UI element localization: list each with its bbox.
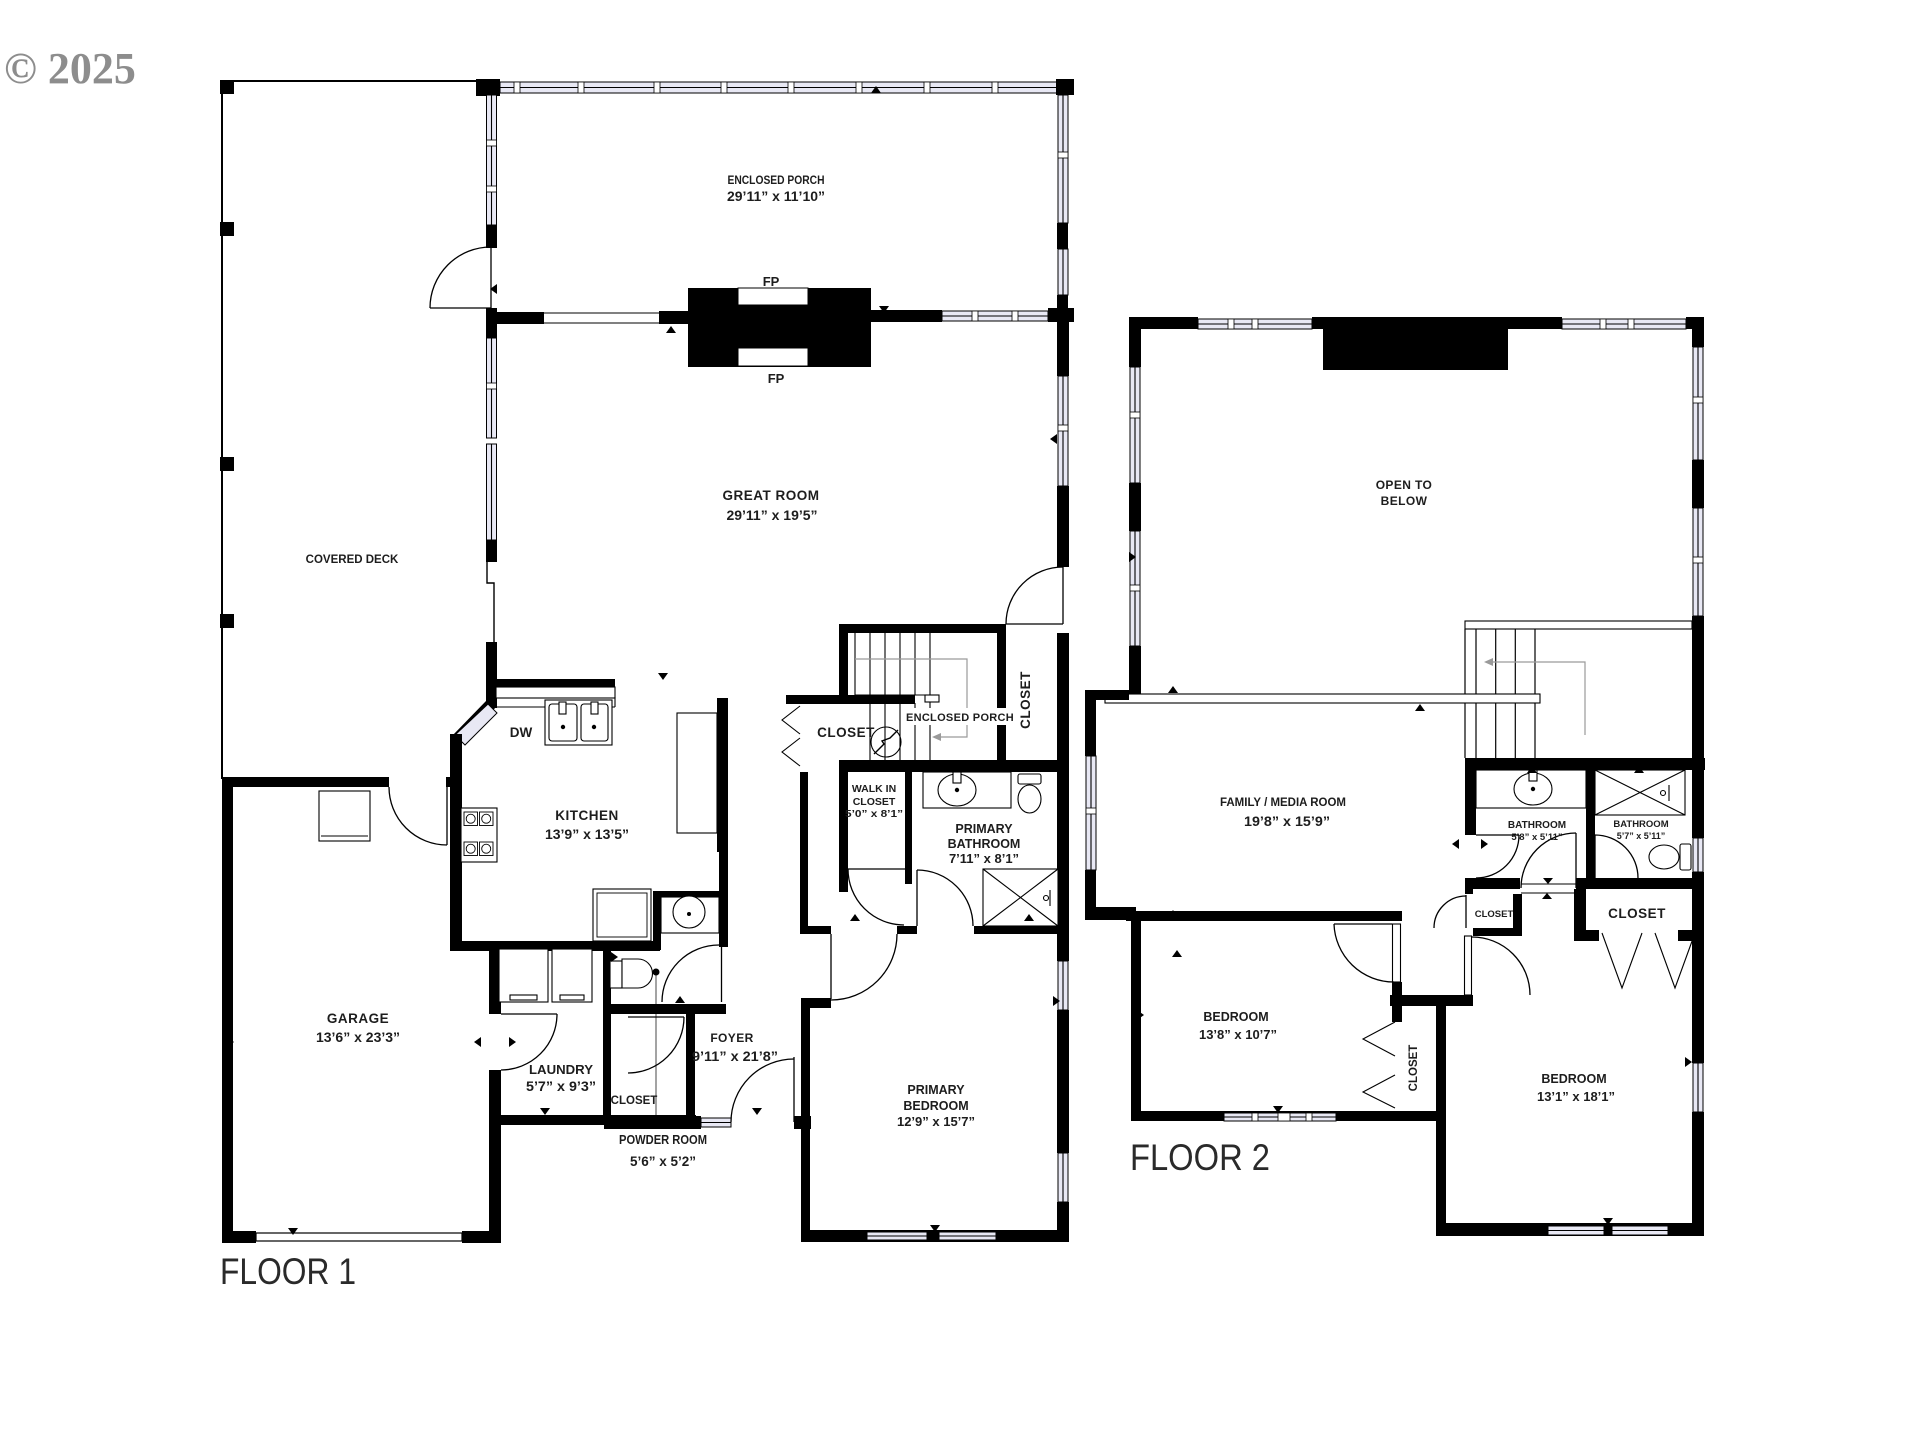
svg-text:FAMILY / MEDIA ROOM: FAMILY / MEDIA ROOM xyxy=(1220,795,1346,809)
svg-text:29’11” x 19’5”: 29’11” x 19’5” xyxy=(726,507,817,523)
svg-text:KITCHEN: KITCHEN xyxy=(555,808,619,823)
svg-text:FOYER: FOYER xyxy=(710,1031,753,1045)
svg-text:13’9” x 13’5”: 13’9” x 13’5” xyxy=(545,826,629,842)
svg-text:BELOW: BELOW xyxy=(1381,494,1428,508)
svg-text:9’11” x 21’8”: 9’11” x 21’8” xyxy=(692,1049,778,1064)
svg-text:ENCLOSED PORCH: ENCLOSED PORCH xyxy=(728,173,825,187)
svg-text:CLOSET: CLOSET xyxy=(1408,1045,1420,1092)
svg-text:CLOSET: CLOSET xyxy=(1608,906,1666,921)
svg-text:LAUNDRY: LAUNDRY xyxy=(529,1062,593,1077)
svg-text:5’8” x 5’11”: 5’8” x 5’11” xyxy=(1511,832,1562,843)
svg-text:BEDROOM: BEDROOM xyxy=(1541,1072,1606,1086)
svg-text:7’11” x 8’1”: 7’11” x 8’1” xyxy=(949,851,1019,866)
svg-text:BEDROOM: BEDROOM xyxy=(903,1099,968,1113)
svg-text:FLOOR 1: FLOOR 1 xyxy=(220,1251,356,1292)
svg-text:FP: FP xyxy=(768,371,785,386)
svg-text:5’0” x 8’1”: 5’0” x 8’1” xyxy=(845,808,903,820)
svg-text:COVERED DECK: COVERED DECK xyxy=(306,554,399,566)
svg-text:CLOSET: CLOSET xyxy=(1475,909,1514,920)
svg-text:WALK IN: WALK IN xyxy=(852,783,896,795)
svg-text:13’8” x 10’7”: 13’8” x 10’7” xyxy=(1199,1027,1277,1042)
svg-text:CLOSET: CLOSET xyxy=(611,1095,658,1107)
svg-text:GARAGE: GARAGE xyxy=(327,1011,389,1026)
svg-text:5’7” x 5’11”: 5’7” x 5’11” xyxy=(1617,831,1666,841)
svg-text:CLOSET: CLOSET xyxy=(817,725,875,740)
svg-text:© 2025: © 2025 xyxy=(4,44,136,93)
svg-text:POWDER ROOM: POWDER ROOM xyxy=(619,1132,707,1147)
svg-text:13’1” x 18’1”: 13’1” x 18’1” xyxy=(1537,1089,1615,1104)
svg-text:CLOSET: CLOSET xyxy=(1018,671,1033,729)
svg-text:FP: FP xyxy=(763,274,780,289)
svg-text:OPEN TO: OPEN TO xyxy=(1376,478,1433,492)
svg-text:13’6” x 23’3”: 13’6” x 23’3” xyxy=(316,1029,400,1045)
svg-text:5’7” x 9’3”: 5’7” x 9’3” xyxy=(526,1079,596,1094)
svg-text:DW: DW xyxy=(510,725,533,740)
svg-text:PRIMARY: PRIMARY xyxy=(907,1083,965,1097)
svg-text:19’8” x 15’9”: 19’8” x 15’9” xyxy=(1244,814,1330,829)
svg-text:29’11” x 11’10”: 29’11” x 11’10” xyxy=(727,189,825,204)
svg-text:PRIMARY: PRIMARY xyxy=(955,822,1013,836)
svg-text:BEDROOM: BEDROOM xyxy=(1203,1010,1268,1024)
svg-text:5’6” x 5’2”: 5’6” x 5’2” xyxy=(630,1154,696,1169)
svg-text:GREAT ROOM: GREAT ROOM xyxy=(723,488,820,503)
svg-text:BATHROOM: BATHROOM xyxy=(1613,819,1668,830)
svg-text:FLOOR 2: FLOOR 2 xyxy=(1130,1137,1270,1178)
svg-text:12’9” x 15’7”: 12’9” x 15’7” xyxy=(897,1114,975,1129)
svg-text:ENCLOSED PORCH: ENCLOSED PORCH xyxy=(906,712,1014,724)
svg-text:BATHROOM: BATHROOM xyxy=(948,837,1021,851)
svg-text:CLOSET: CLOSET xyxy=(853,796,896,808)
svg-text:BATHROOM: BATHROOM xyxy=(1508,820,1566,831)
